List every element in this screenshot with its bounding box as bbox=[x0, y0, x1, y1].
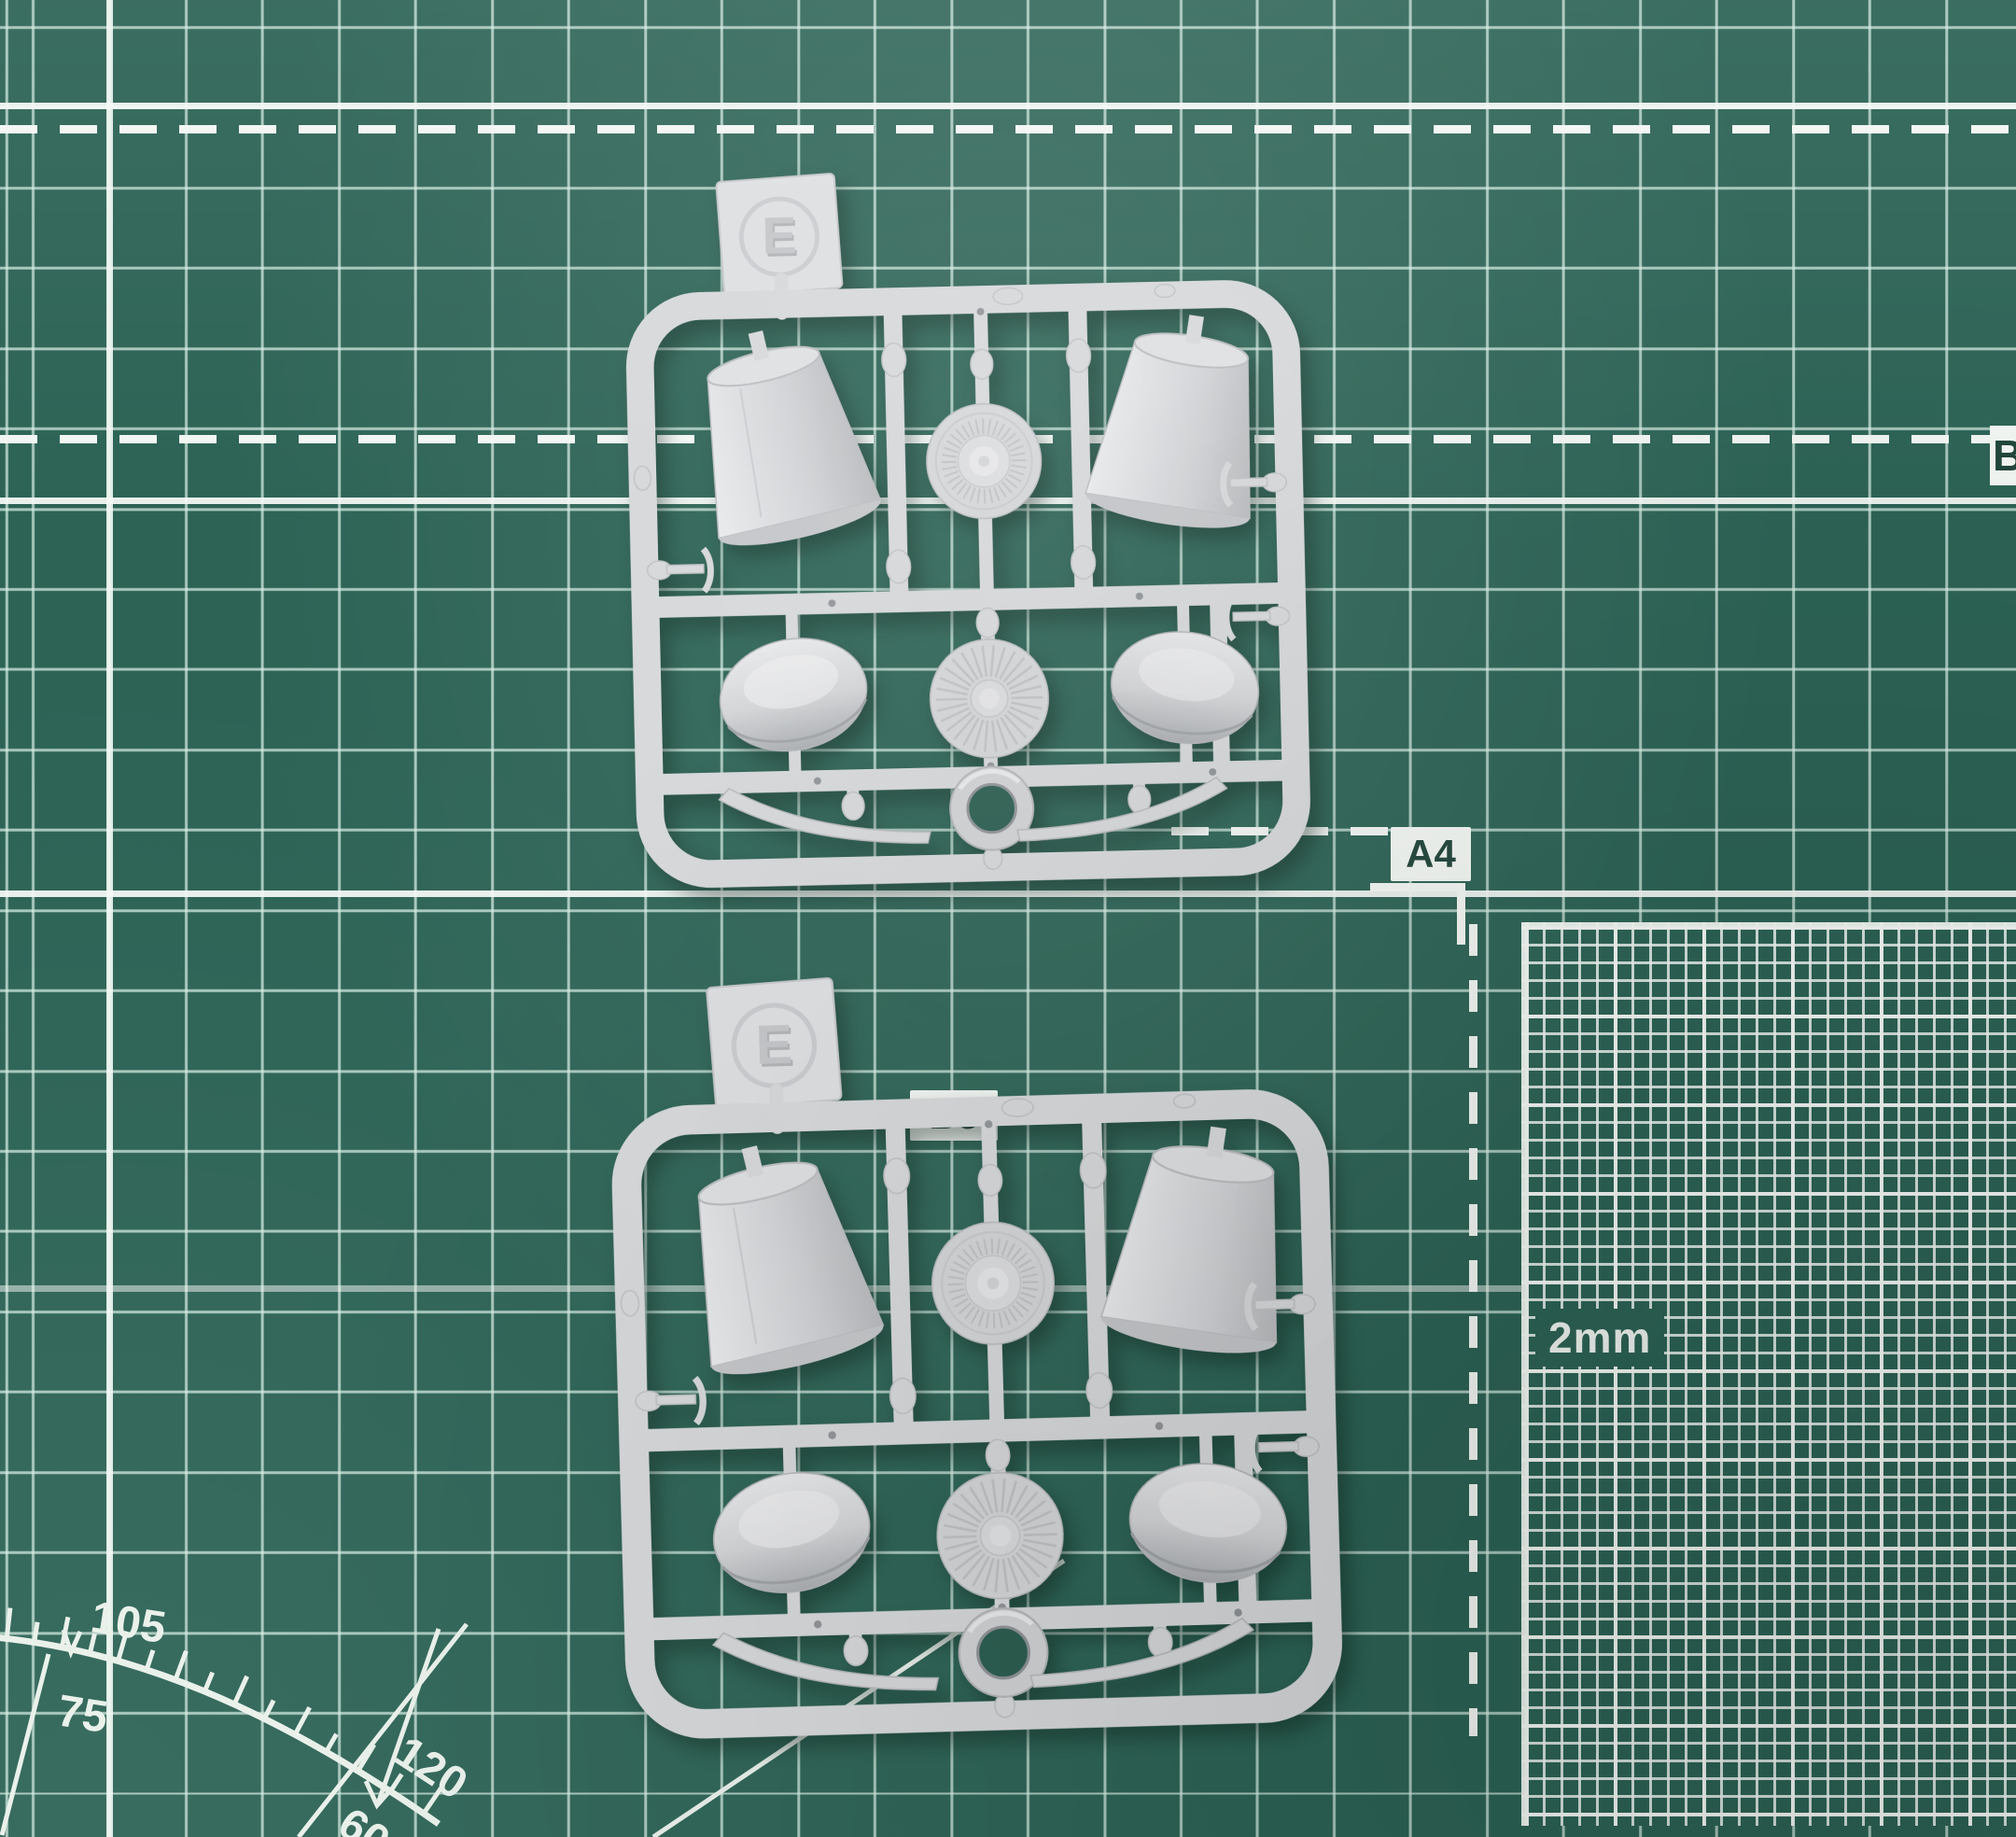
tag-letter: E bbox=[755, 1015, 793, 1076]
protractor-label-75: 75 bbox=[54, 1686, 111, 1743]
protractor-tick bbox=[147, 1650, 153, 1670]
protractor-tick bbox=[327, 1734, 337, 1752]
tag-letter: E bbox=[762, 206, 797, 265]
bowl-part-left bbox=[710, 625, 877, 763]
fine-grid-scale-text: 2mm bbox=[1548, 1313, 1651, 1362]
spinner-disc-part-top bbox=[931, 1221, 1056, 1346]
mat-dashed-line-top bbox=[0, 125, 2016, 133]
engine-disc-part-mid bbox=[929, 638, 1049, 759]
bowl-part-left bbox=[703, 1459, 880, 1606]
edge-partial-text: B bbox=[1993, 430, 2016, 481]
protractor-label-105: 105 bbox=[88, 1592, 169, 1653]
protractor-tick bbox=[264, 1701, 273, 1719]
disc-rib bbox=[1024, 1535, 1057, 1536]
fine-grid-scale-label: 2mm bbox=[1535, 1309, 1664, 1367]
spinner-disc-part-top bbox=[925, 402, 1042, 519]
disc-rib bbox=[936, 699, 968, 700]
protractor-radial-105 bbox=[2, 1654, 49, 1835]
a4-corner-mark-v bbox=[1457, 883, 1465, 945]
protractor-tick bbox=[175, 1651, 187, 1680]
edge-partial-label: B bbox=[1990, 426, 2016, 485]
mat-diagonal-60 bbox=[299, 1624, 467, 1837]
paper-size-label-a4: A4 bbox=[1391, 827, 1471, 881]
skid-part-right bbox=[1016, 778, 1228, 841]
protractor-tick bbox=[204, 1673, 212, 1691]
sprue-top: E E bbox=[608, 149, 1326, 904]
protractor-tick bbox=[7, 1608, 10, 1639]
protractor-tick bbox=[295, 1707, 310, 1734]
a4-text: A4 bbox=[1406, 832, 1456, 876]
skid-part-left bbox=[719, 784, 931, 848]
bowl-part-right bbox=[1104, 623, 1266, 752]
a4-corner-mark-h bbox=[1370, 883, 1465, 891]
sprue-bottom: E E bbox=[591, 949, 1359, 1756]
cowling-part-top-left bbox=[675, 313, 885, 556]
protractor-label-60: 60 bbox=[329, 1799, 399, 1837]
bowl-part-right bbox=[1123, 1454, 1294, 1592]
disc-rib bbox=[1012, 697, 1043, 698]
protractor-tick bbox=[35, 1622, 37, 1643]
photo-scene: 2mm A4 B5 B 105 75 120 60 bbox=[0, 0, 2016, 1837]
mat-dashed-line-vertical bbox=[1469, 924, 1477, 1736]
mat-bold-line-h1 bbox=[0, 103, 2016, 109]
engine-disc-part-mid bbox=[935, 1471, 1064, 1600]
cowling-part-top-left bbox=[664, 1127, 889, 1386]
cowling-part-top-right bbox=[1083, 303, 1279, 537]
protractor-tick bbox=[234, 1676, 247, 1704]
cowling-part-top-right bbox=[1099, 1115, 1306, 1362]
fine-2mm-grid bbox=[1521, 922, 2016, 1826]
disc-rib bbox=[944, 1536, 977, 1537]
